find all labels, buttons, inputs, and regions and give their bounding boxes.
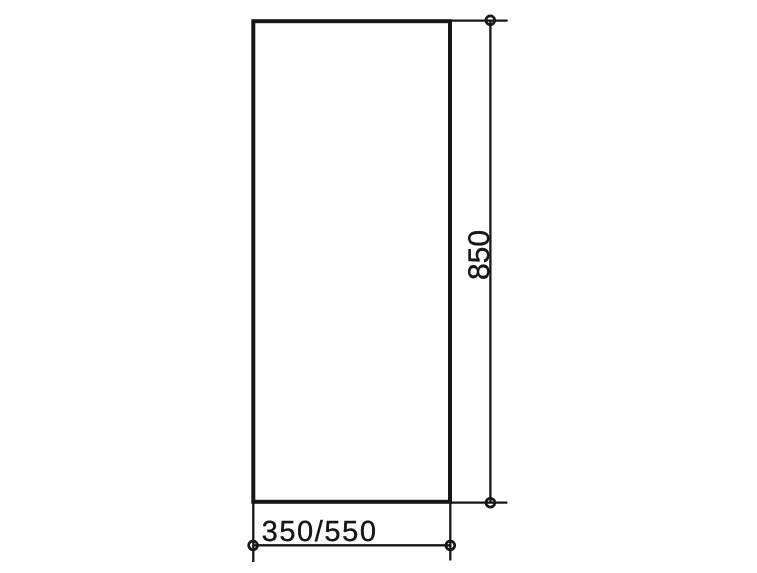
- svg-text:350/550: 350/550: [262, 516, 378, 548]
- svg-text:850: 850: [463, 230, 496, 280]
